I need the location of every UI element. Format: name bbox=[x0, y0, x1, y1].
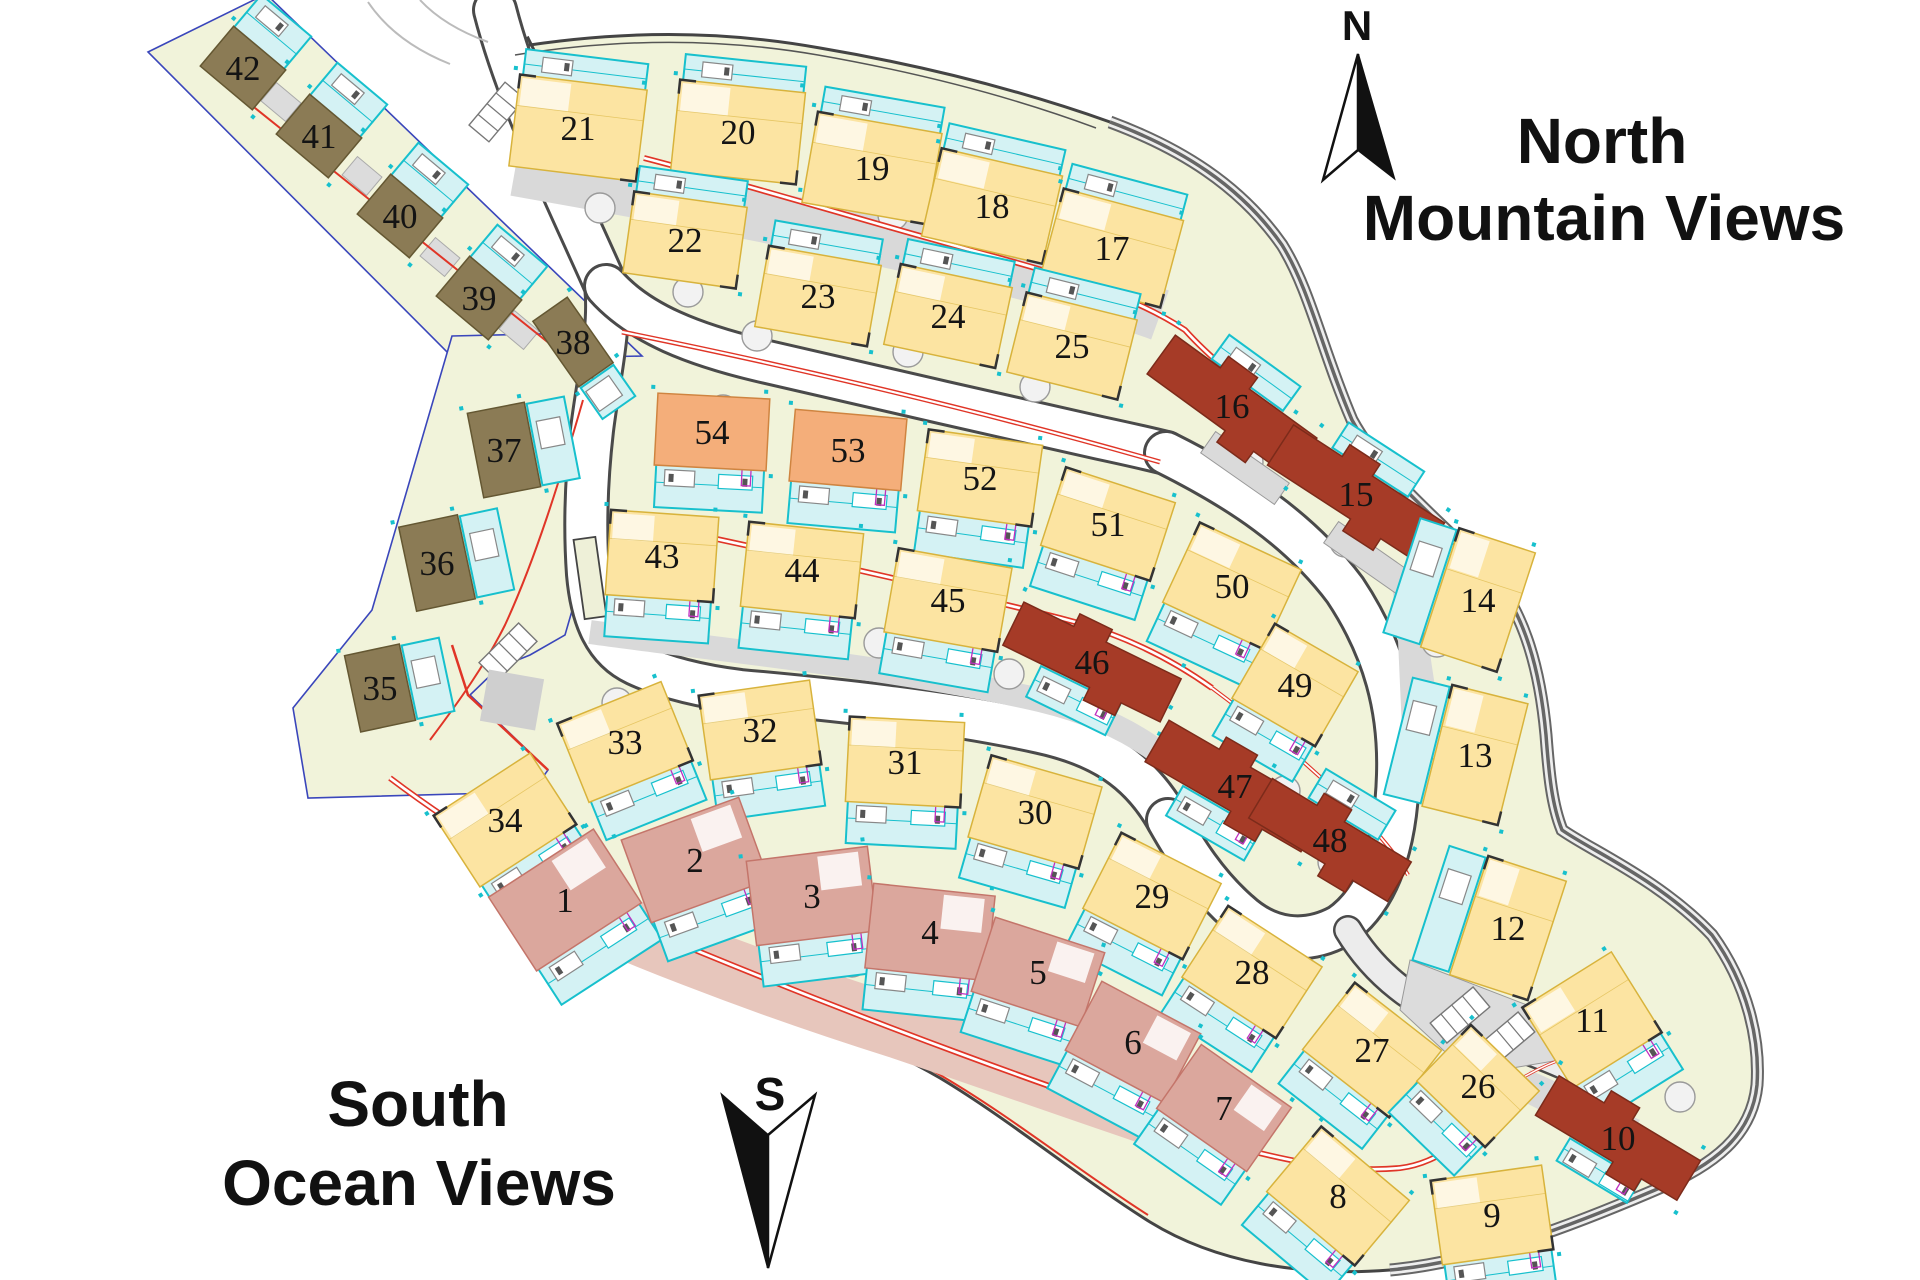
svg-text:4: 4 bbox=[921, 913, 939, 952]
svg-text:32: 32 bbox=[743, 711, 778, 750]
svg-text:36: 36 bbox=[420, 544, 455, 583]
svg-text:40: 40 bbox=[383, 197, 418, 236]
svg-text:13: 13 bbox=[1458, 736, 1493, 775]
svg-text:3: 3 bbox=[803, 877, 821, 916]
svg-text:33: 33 bbox=[608, 723, 643, 762]
svg-text:S: S bbox=[755, 1068, 786, 1120]
svg-text:38: 38 bbox=[556, 323, 591, 362]
svg-text:10: 10 bbox=[1601, 1119, 1636, 1158]
svg-text:47: 47 bbox=[1218, 767, 1253, 806]
svg-text:North: North bbox=[1517, 105, 1688, 177]
svg-text:14: 14 bbox=[1461, 581, 1496, 620]
svg-text:6: 6 bbox=[1124, 1023, 1142, 1062]
svg-text:17: 17 bbox=[1095, 229, 1130, 268]
svg-text:20: 20 bbox=[721, 113, 756, 152]
svg-text:18: 18 bbox=[975, 187, 1010, 226]
svg-text:23: 23 bbox=[801, 277, 836, 316]
svg-text:25: 25 bbox=[1055, 327, 1090, 366]
svg-text:29: 29 bbox=[1135, 877, 1170, 916]
svg-text:49: 49 bbox=[1278, 666, 1313, 705]
svg-text:48: 48 bbox=[1313, 821, 1348, 860]
svg-text:South: South bbox=[327, 1068, 508, 1140]
svg-text:15: 15 bbox=[1339, 475, 1374, 514]
svg-text:16: 16 bbox=[1215, 387, 1250, 426]
svg-text:Mountain Views: Mountain Views bbox=[1363, 182, 1845, 254]
svg-text:35: 35 bbox=[363, 669, 398, 708]
svg-text:37: 37 bbox=[487, 431, 522, 470]
svg-text:1: 1 bbox=[556, 881, 574, 920]
svg-text:44: 44 bbox=[785, 551, 820, 590]
svg-text:21: 21 bbox=[561, 109, 596, 148]
svg-text:42: 42 bbox=[226, 49, 261, 88]
svg-text:45: 45 bbox=[931, 581, 966, 620]
svg-text:53: 53 bbox=[831, 431, 866, 470]
svg-text:41: 41 bbox=[302, 117, 337, 156]
svg-text:19: 19 bbox=[855, 149, 890, 188]
svg-text:11: 11 bbox=[1575, 1001, 1609, 1040]
svg-text:43: 43 bbox=[645, 537, 680, 576]
svg-text:46: 46 bbox=[1075, 643, 1110, 682]
svg-text:26: 26 bbox=[1461, 1067, 1496, 1106]
svg-text:N: N bbox=[1342, 2, 1372, 49]
svg-text:8: 8 bbox=[1329, 1177, 1347, 1216]
svg-text:30: 30 bbox=[1018, 793, 1053, 832]
svg-text:9: 9 bbox=[1483, 1196, 1501, 1235]
svg-text:22: 22 bbox=[668, 221, 703, 260]
svg-text:12: 12 bbox=[1491, 909, 1526, 948]
svg-text:52: 52 bbox=[963, 459, 998, 498]
svg-text:24: 24 bbox=[931, 297, 966, 336]
svg-text:51: 51 bbox=[1091, 505, 1126, 544]
svg-text:39: 39 bbox=[462, 279, 497, 318]
svg-text:7: 7 bbox=[1215, 1089, 1233, 1128]
svg-text:54: 54 bbox=[695, 413, 730, 452]
svg-text:Ocean Views: Ocean Views bbox=[222, 1147, 616, 1219]
svg-text:28: 28 bbox=[1235, 953, 1270, 992]
svg-text:2: 2 bbox=[686, 841, 704, 880]
svg-text:27: 27 bbox=[1355, 1031, 1390, 1070]
svg-text:5: 5 bbox=[1029, 953, 1047, 992]
svg-text:31: 31 bbox=[888, 743, 923, 782]
svg-text:50: 50 bbox=[1215, 567, 1250, 606]
svg-text:34: 34 bbox=[488, 801, 523, 840]
